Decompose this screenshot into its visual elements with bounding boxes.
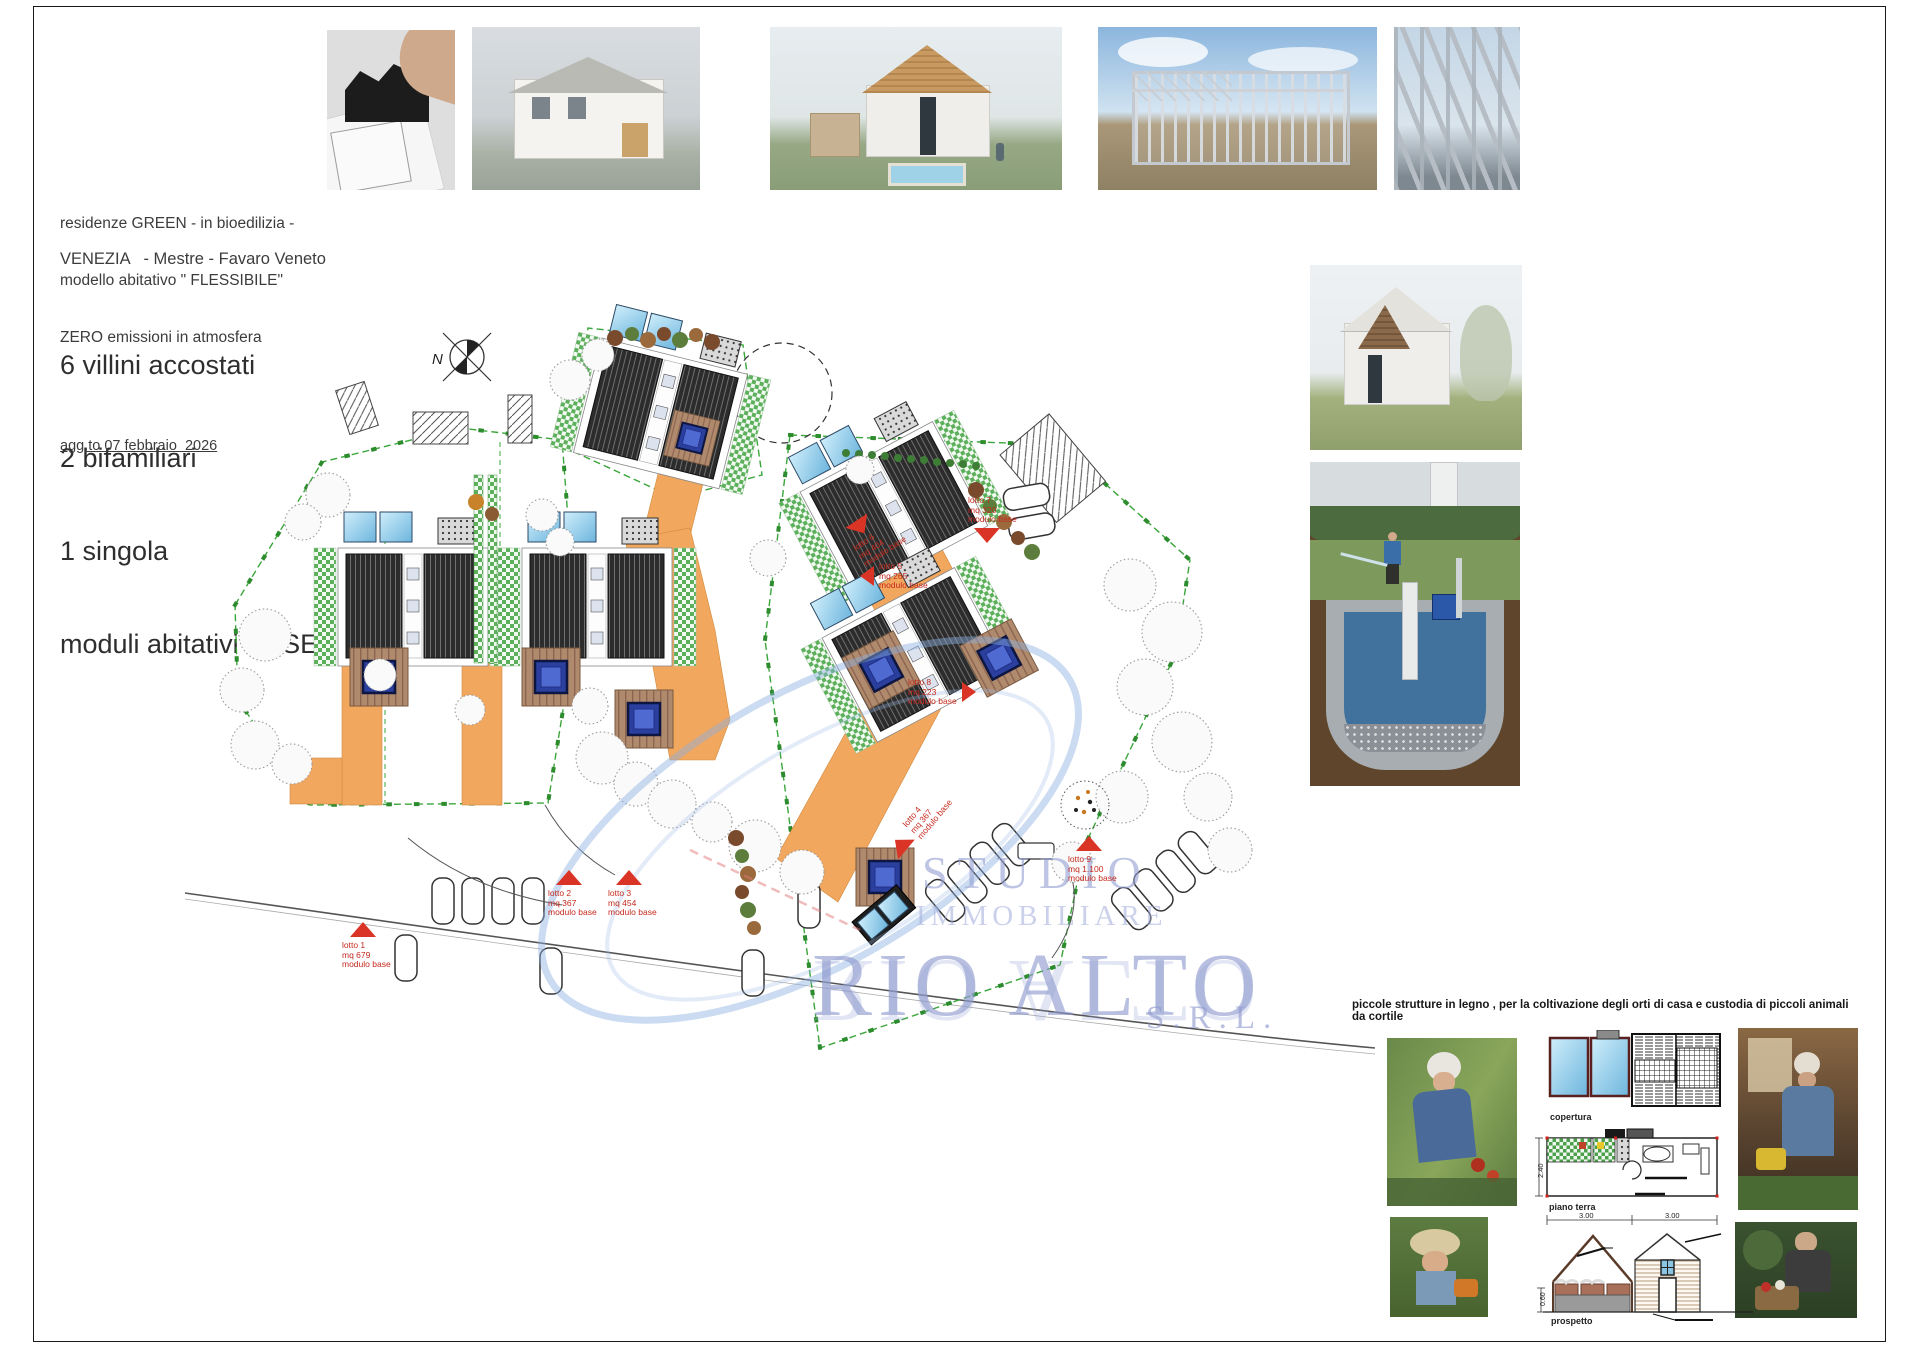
tree	[1460, 305, 1512, 401]
tall-window	[920, 97, 936, 155]
pool	[888, 163, 966, 186]
north-label: N	[432, 351, 443, 368]
elevation-label-bind: prospetto	[1551, 1316, 1593, 1326]
lot-module: modulo base	[608, 908, 657, 918]
lot-module: modulo base	[879, 581, 928, 591]
lot-label-7: lotto 7mq 320modulo base	[968, 496, 1017, 543]
photo-hand-with-model	[327, 30, 455, 190]
deck-hot-tub	[615, 690, 673, 748]
dim-h: 2.40	[1536, 1163, 1545, 1178]
photo-child-gardening	[1390, 1217, 1488, 1317]
roof-truss	[1132, 71, 1232, 101]
dim-w1: 3.00	[1579, 1211, 1594, 1220]
cloud	[1118, 37, 1208, 67]
lot-module: modulo base	[908, 697, 957, 707]
shirt	[1416, 1271, 1456, 1305]
photo-wood-gable-house-render	[770, 27, 1062, 190]
lot-marker-icon	[616, 870, 642, 885]
lot-module: modulo base	[548, 908, 597, 918]
foliage	[1387, 1178, 1517, 1206]
north-arrow-icon	[443, 333, 491, 381]
lot-module: modulo base	[342, 960, 391, 970]
cloud	[1248, 47, 1358, 73]
lot-label-2: lotto 2mq 367modulo base	[548, 870, 597, 918]
lot-label-3: lotto 3mq 454modulo base	[608, 870, 657, 918]
dim-w2: 3.00	[1665, 1211, 1680, 1220]
lot-marker-icon	[962, 682, 976, 702]
lot-module: modulo base	[968, 515, 1017, 525]
photo-steel-frame-structure	[1098, 27, 1377, 190]
description-line: residenze GREEN - in bioedilizia -	[60, 214, 294, 233]
person	[996, 143, 1004, 161]
hatched-structures	[336, 381, 532, 444]
vegetable	[1775, 1280, 1785, 1290]
outlet-pipe	[1456, 558, 1462, 618]
house-window	[532, 97, 550, 119]
roof-plan-label: copertura	[1550, 1112, 1593, 1122]
photo-white-house-render	[472, 27, 700, 190]
villa-north	[550, 297, 779, 494]
house-roof	[508, 57, 668, 93]
elevation-drawing	[1537, 1234, 1753, 1320]
deck-hot-tub	[522, 648, 580, 706]
vegetable	[1471, 1158, 1485, 1172]
dim-h2: 0.60	[1540, 1292, 1547, 1306]
lot-label-8: lotto 8mq 223modulo base	[908, 678, 976, 707]
lot-marker-icon	[556, 870, 582, 885]
house-door	[622, 123, 648, 157]
road-line	[185, 893, 1375, 1048]
house-window	[568, 97, 586, 119]
lot-label-1: lotto 1mq 679modulo base	[342, 922, 391, 970]
ground-floor-drawing	[1546, 1129, 1719, 1198]
photo-gardening-woman	[1387, 1038, 1517, 1206]
lot-marker-icon	[1076, 836, 1102, 851]
vertical-studs	[1394, 27, 1520, 190]
annex-cabin	[810, 113, 860, 157]
face	[1795, 1232, 1817, 1252]
location-line: VENEZIA - Mestre - Favaro Veneto	[60, 250, 326, 269]
suction-pipe	[1402, 582, 1418, 680]
lot-label-9: lotto 9mq 1.100modulo base	[1068, 836, 1117, 884]
photo-steel-frame-closeup	[1394, 27, 1520, 190]
lot-module: modulo base	[1068, 874, 1117, 884]
apron	[1412, 1087, 1477, 1163]
drawing-plan	[330, 120, 412, 190]
wood-gable	[862, 45, 992, 93]
shirt	[1782, 1086, 1834, 1156]
lot-marker-icon	[350, 922, 376, 937]
footer-caption: piccole strutture in legno , per la colt…	[1352, 999, 1860, 1023]
shed-drawings: copertura piano terra	[1535, 1030, 1765, 1330]
lot-marker-icon	[974, 528, 1000, 543]
presentation-sheet: residenze GREEN - in bioedilizia - model…	[0, 0, 1920, 1358]
face	[1422, 1251, 1448, 1273]
watering-can	[1454, 1279, 1478, 1297]
roof-plan-drawing	[1550, 1030, 1720, 1106]
